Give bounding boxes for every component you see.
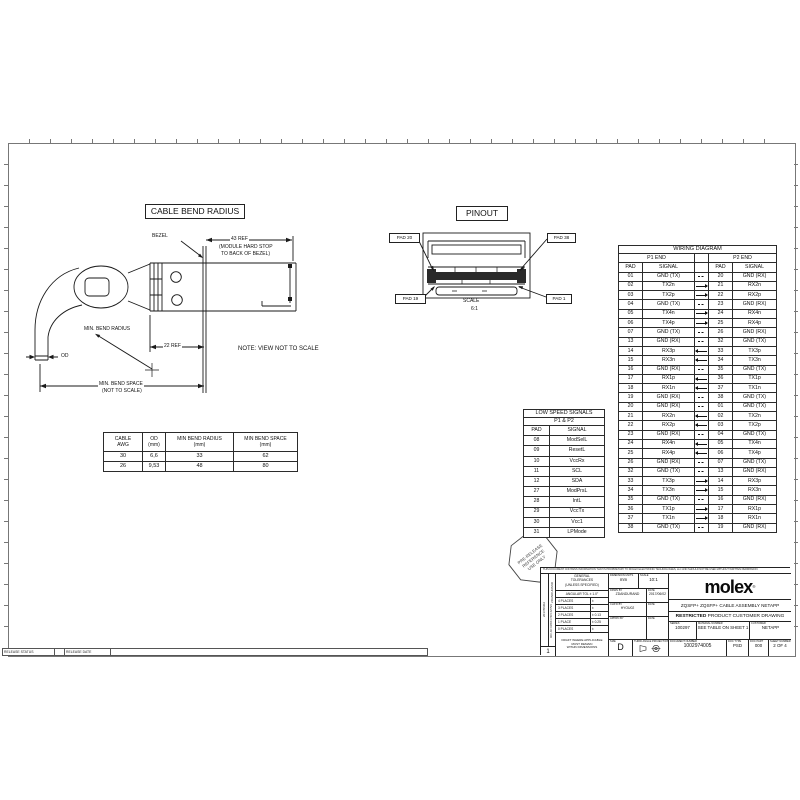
wiring-cell: 18 <box>709 514 733 523</box>
zone-tick <box>92 139 93 143</box>
wiring-cell: TX1p <box>733 374 777 383</box>
wiring-direction-cell <box>695 449 709 458</box>
wiring-cell: RX4n <box>643 439 695 448</box>
arrow-right-icon <box>696 481 707 482</box>
zone-tick <box>4 437 8 438</box>
zone-tick <box>4 206 8 207</box>
wiring-row: 17RX1p36TX1p <box>619 374 777 383</box>
third-angle-projection-icon <box>638 644 664 653</box>
zone-tick <box>134 139 135 143</box>
zone-tick <box>794 542 798 543</box>
cable-table-cell: 80 <box>234 462 298 472</box>
release-status-value <box>55 649 65 655</box>
wiring-cell: GND (RX) <box>643 402 695 411</box>
zone-tick <box>617 139 618 143</box>
zone-tick <box>794 626 798 627</box>
wiring-cell: 05 <box>709 439 733 448</box>
wiring-cell: 37 <box>619 514 643 523</box>
wiring-cell: GND (TX) <box>733 402 777 411</box>
zone-tick <box>155 139 156 143</box>
material-number-value: SEE TABLE ON SHEET 1 <box>697 625 749 631</box>
zone-tick <box>794 500 798 501</box>
min-bend-radius-label: MIN. BEND RADIUS <box>84 327 130 333</box>
zone-tick <box>575 139 576 143</box>
zone-tick <box>794 353 798 354</box>
wiring-cell: 14 <box>709 477 733 486</box>
wiring-cell: TX4p <box>733 449 777 458</box>
wiring-cell: 22 <box>709 291 733 300</box>
zone-tick <box>4 563 8 564</box>
dim-22-ref: 22 REF <box>163 344 182 350</box>
wiring-direction-cell <box>695 402 709 411</box>
wiring-cell: 04 <box>709 430 733 439</box>
wiring-cell: 26 <box>619 458 643 467</box>
od-label: OD <box>61 354 69 360</box>
cable-table-cell: 9,53 <box>143 462 166 472</box>
gnd-link-dash-icon <box>698 276 705 277</box>
arrow-right-icon <box>696 509 707 510</box>
low-speed-cell: 29 <box>524 507 550 517</box>
release-date-value <box>111 649 427 655</box>
wiring-cell: 14 <box>619 346 643 355</box>
tolerance-place-row: 3 PLACES± <box>556 604 608 611</box>
checked-by-value: HYOU02 <box>609 606 646 610</box>
cable-table-cell: 26 <box>104 462 143 472</box>
wiring-direction-cell <box>695 328 709 337</box>
wiring-direction-cell <box>695 421 709 430</box>
wiring-cell: 15 <box>709 486 733 495</box>
wiring-direction-cell <box>695 523 709 532</box>
checked-date-label: DATE <box>647 603 668 606</box>
gnd-link-dash-icon <box>698 434 705 435</box>
wiring-cell: 16 <box>709 495 733 504</box>
zone-tick <box>470 139 471 143</box>
gnd-link-dash-icon <box>698 527 705 528</box>
wiring-cell: 23 <box>619 430 643 439</box>
low-speed-row: 11SCL <box>524 466 605 476</box>
wiring-cell: 37 <box>709 384 733 393</box>
pad-20-label: PAD 20 <box>389 233 420 243</box>
wiring-cell: RX3n <box>643 356 695 365</box>
zone-tick <box>4 311 8 312</box>
zone-tick <box>4 269 8 270</box>
wiring-direction-cell <box>695 439 709 448</box>
gnd-link-dash-icon <box>698 471 705 472</box>
tolerance-place-row: 0 PLACES± <box>556 625 608 632</box>
wiring-cell: 34 <box>709 356 733 365</box>
wiring-cell: 01 <box>619 272 643 281</box>
zone-tick <box>554 139 555 143</box>
product-title: ZQSFP+ ZQSFP+ CABLE ASSEMBLY NETAPP <box>681 603 779 608</box>
angular-tolerance: ANGULAR TOL ± 1.0° <box>566 592 599 596</box>
wiring-direction-cell <box>695 430 709 439</box>
zone-tick <box>281 139 282 143</box>
wiring-cell: 04 <box>619 300 643 309</box>
arrow-right-icon <box>696 518 707 519</box>
dimension-units-value: mm <box>609 577 638 583</box>
zone-tick <box>4 164 8 165</box>
wiring-direction-cell <box>695 291 709 300</box>
wiring-cell: GND (RX) <box>643 393 695 402</box>
dim-43-note-2: TO BACK OF BEZEL) <box>221 252 270 258</box>
wiring-cell: GND (RX) <box>733 300 777 309</box>
zone-tick <box>4 185 8 186</box>
arrow-left-icon <box>696 425 707 426</box>
wiring-row: 23GND (RX)04GND (TX) <box>619 430 777 439</box>
pinout-title: PINOUT <box>456 206 508 221</box>
zone-tick <box>4 458 8 459</box>
low-speed-row: 31LPMode <box>524 527 605 537</box>
wiring-cell: GND (RX) <box>733 467 777 476</box>
low-speed-cell: Vcc1 <box>550 517 605 527</box>
arrow-left-icon <box>696 444 707 445</box>
zone-tick <box>4 542 8 543</box>
wiring-column-header: PAD <box>619 263 643 272</box>
zone-tick <box>29 139 30 143</box>
wiring-column-header: SIGNAL <box>733 263 777 272</box>
wiring-cell: RX1p <box>643 374 695 383</box>
wiring-cell: 19 <box>619 393 643 402</box>
pinout-scale-value: 6:1 <box>471 307 478 313</box>
wiring-cell: RX3p <box>733 477 777 486</box>
wiring-cell: 33 <box>619 477 643 486</box>
arrow-right-icon <box>696 313 707 314</box>
wiring-row: 24RX4n05TX4n <box>619 439 777 448</box>
wiring-direction-cell <box>695 495 709 504</box>
cable-table-cell: 62 <box>234 452 298 462</box>
wiring-direction-cell <box>695 514 709 523</box>
zone-tick <box>4 290 8 291</box>
wiring-cell: GND (TX) <box>733 393 777 402</box>
proprietary-notice: THIS DOCUMENT CONTAINS INFORMATION THAT … <box>541 568 791 572</box>
zone-tick <box>794 458 798 459</box>
zone-tick <box>533 139 534 143</box>
wiring-cell: RX2n <box>733 281 777 290</box>
zone-tick <box>659 139 660 143</box>
wiring-column-header: SIGNAL <box>643 263 695 272</box>
wiring-cell: 21 <box>619 412 643 421</box>
p2-end-header: P2 END <box>709 254 777 263</box>
zone-tick <box>794 437 798 438</box>
wiring-cell: 19 <box>709 523 733 532</box>
wiring-row: 32GND (TX)13GND (RX) <box>619 467 777 476</box>
low-speed-cell: ModSelL <box>550 436 605 446</box>
gnd-link-dash-icon <box>698 304 705 305</box>
low-speed-header: SIGNAL <box>550 426 605 436</box>
wiring-cell: 35 <box>709 365 733 374</box>
wiring-cell: 34 <box>619 486 643 495</box>
zone-tick <box>794 584 798 585</box>
wiring-cell: GND (TX) <box>733 458 777 467</box>
wiring-cell: RX2p <box>733 291 777 300</box>
zone-tick <box>722 139 723 143</box>
general-tolerances-line3: (UNLESS SPECIFIED) <box>556 583 608 587</box>
wiring-direction-cell <box>695 412 709 421</box>
wiring-cell: 13 <box>619 337 643 346</box>
release-bar: RELEASE STATUS RELEASE DATE <box>2 648 428 656</box>
low-speed-cell: ResetL <box>550 446 605 456</box>
release-date-label: RELEASE DATE <box>65 649 111 655</box>
low-speed-row: 29VccTx <box>524 507 605 517</box>
decimal-places-tolerances: 4 PLACES±3 PLACES±2 PLACES± 0.131 PLACE±… <box>555 597 608 632</box>
tolerance-place-row: 4 PLACES± <box>556 597 608 604</box>
zone-tick <box>4 374 8 375</box>
zone-tick <box>218 139 219 143</box>
zone-tick <box>50 139 51 143</box>
wiring-cell: TX3p <box>643 477 695 486</box>
wiring-cell: 33 <box>709 346 733 355</box>
arrow-right-icon <box>696 323 707 324</box>
zone-tick <box>512 139 513 143</box>
zone-tick <box>239 139 240 143</box>
wiring-column-header <box>695 263 709 272</box>
gnd-link-dash-icon <box>698 499 705 500</box>
cable-bend-table: CABLEAWGOD(mm)MIN BEND RADIUS(mm)MIN BEN… <box>103 432 298 472</box>
low-speed-cell: 31 <box>524 527 550 537</box>
wiring-column-header: PAD <box>709 263 733 272</box>
wiring-cell: 22 <box>619 421 643 430</box>
wiring-direction-cell <box>695 281 709 290</box>
cable-table-row: 269,534880 <box>104 462 298 472</box>
cable-table-cell: 6,6 <box>143 452 166 462</box>
wiring-cell: 16 <box>619 365 643 374</box>
zone-tick <box>794 605 798 606</box>
wiring-arrow-header <box>695 254 709 263</box>
wiring-diagram-table: WIRING DIAGRAM P1 END P2 END PADSIGNALPA… <box>618 245 777 533</box>
wiring-cell: GND (TX) <box>733 337 777 346</box>
arrow-left-icon <box>696 416 707 417</box>
low-speed-title: LOW SPEED SIGNALS <box>524 410 605 418</box>
wiring-cell: TX3n <box>733 356 777 365</box>
wiring-row: 20GND (RX)01GND (TX) <box>619 402 777 411</box>
zone-tick <box>794 479 798 480</box>
molex-logo: molex <box>705 578 753 596</box>
wiring-cell: RX3n <box>733 486 777 495</box>
zone-tick <box>491 139 492 143</box>
wiring-cell: 06 <box>709 449 733 458</box>
wiring-direction-cell <box>695 319 709 328</box>
zone-tick <box>794 164 798 165</box>
zone-tick <box>428 139 429 143</box>
wiring-row: 01GND (TX)20GND (RX) <box>619 272 777 281</box>
wiring-direction-cell <box>695 467 709 476</box>
wiring-row: 13GND (RX)32GND (TX) <box>619 337 777 346</box>
wiring-direction-cell <box>695 477 709 486</box>
zone-tick <box>4 500 8 501</box>
wiring-cell: 05 <box>619 309 643 318</box>
release-status-label: RELEASE STATUS <box>3 649 55 655</box>
zone-tick <box>4 227 8 228</box>
sideways-drafter-name: ZDANDURAND <box>551 582 554 603</box>
cable-table-header: CABLEAWG <box>104 433 143 452</box>
zone-tick <box>794 206 798 207</box>
drawn-date-value: 2017/06/02 <box>647 592 668 596</box>
zone-tick <box>4 353 8 354</box>
zone-tick <box>794 311 798 312</box>
wiring-cell: TX4n <box>643 309 695 318</box>
wiring-cell: 20 <box>619 402 643 411</box>
low-speed-cell: LPMode <box>550 527 605 537</box>
wiring-row: 22RX2p03TX2p <box>619 421 777 430</box>
wiring-cell: RX4p <box>733 319 777 328</box>
zone-tick <box>743 139 744 143</box>
zone-tick <box>365 139 366 143</box>
wiring-cell: GND (RX) <box>733 328 777 337</box>
wiring-cell: GND (RX) <box>643 365 695 374</box>
min-bend-space-note: (NOT TO SCALE) <box>101 389 143 395</box>
wiring-cell: 06 <box>619 319 643 328</box>
wiring-row: 19GND (RX)38GND (TX) <box>619 393 777 402</box>
arrow-right-icon <box>696 295 707 296</box>
low-speed-row: 28IntL <box>524 497 605 507</box>
wiring-cell: 17 <box>619 374 643 383</box>
wiring-direction-cell <box>695 309 709 318</box>
wiring-cell: GND (RX) <box>733 495 777 504</box>
cable-table-row: 306,63362 <box>104 452 298 462</box>
low-speed-cell: 08 <box>524 436 550 446</box>
zone-tick <box>794 269 798 270</box>
zone-tick <box>794 374 798 375</box>
low-speed-row: 27ModPrsL <box>524 487 605 497</box>
wiring-cell: 38 <box>709 393 733 402</box>
wiring-cell: GND (TX) <box>643 328 695 337</box>
wiring-cell: 03 <box>619 291 643 300</box>
wiring-cell: GND (RX) <box>643 430 695 439</box>
wiring-cell: TX1n <box>733 384 777 393</box>
wiring-cell: 21 <box>709 281 733 290</box>
wiring-cell: 03 <box>709 421 733 430</box>
dim-43-note-1: (MODULE HARD STOP <box>219 245 273 251</box>
wiring-cell: 24 <box>619 439 643 448</box>
zone-tick <box>794 395 798 396</box>
wiring-direction-cell <box>695 365 709 374</box>
low-speed-cell: SCL <box>550 466 605 476</box>
low-speed-subtitle: P1 & P2 <box>524 418 605 426</box>
wiring-row: 38GND (TX)19GND (RX) <box>619 523 777 532</box>
low-speed-row: 30Vcc1 <box>524 517 605 527</box>
sideways-date: 2017/06/02 <box>543 602 546 617</box>
wiring-cell: 07 <box>619 328 643 337</box>
wiring-cell: 32 <box>619 467 643 476</box>
wiring-cell: GND (TX) <box>643 300 695 309</box>
min-bend-space-label: MIN. BEND SPACE <box>98 382 144 388</box>
wiring-row: 02TX2n21RX2n <box>619 281 777 290</box>
zone-tick <box>764 139 765 143</box>
gnd-link-dash-icon <box>698 369 705 370</box>
wiring-cell: GND (RX) <box>733 272 777 281</box>
wiring-direction-cell <box>695 356 709 365</box>
low-speed-row: 09ResetL <box>524 446 605 456</box>
zone-tick <box>680 139 681 143</box>
doc-type-value: PSD <box>727 643 748 649</box>
wiring-row: 37TX1n18RX1n <box>619 514 777 523</box>
low-speed-row: 10VccRx <box>524 456 605 466</box>
wiring-cell: 07 <box>709 458 733 467</box>
wiring-direction-cell <box>695 505 709 514</box>
wiring-cell: GND (RX) <box>733 523 777 532</box>
sideways-signoff-labels: DOC-NO DRWN CHK'D APPVD <box>551 604 553 638</box>
zone-tick <box>302 139 303 143</box>
pad-1-label: PAD 1 <box>546 294 572 304</box>
wiring-row: 03TX2p22RX2p <box>619 291 777 300</box>
wiring-direction-cell <box>695 486 709 495</box>
low-speed-cell: SDA <box>550 476 605 486</box>
wiring-cell: TX1n <box>643 514 695 523</box>
gnd-link-dash-icon <box>698 406 705 407</box>
pinout-scale-label: SCALE <box>463 299 479 305</box>
wiring-cell: RX1n <box>733 514 777 523</box>
cable-table-cell: 30 <box>104 452 143 462</box>
cable-bend-radius-title: CABLE BEND RADIUS <box>145 204 245 219</box>
low-speed-cell: 11 <box>524 466 550 476</box>
wiring-cell: GND (TX) <box>733 365 777 374</box>
cable-table-header: MIN BEND SPACE(mm) <box>234 433 298 452</box>
registered-mark: ® <box>753 584 756 589</box>
wiring-direction-cell <box>695 393 709 402</box>
scale-value: 10:1 <box>639 577 668 583</box>
low-speed-header: PAD <box>524 426 550 436</box>
wiring-row: 16GND (RX)35GND (TX) <box>619 365 777 374</box>
gnd-link-dash-icon <box>698 397 705 398</box>
zone-tick <box>4 248 8 249</box>
wiring-cell: 24 <box>709 309 733 318</box>
restricted-drawing-note: RESTRICTED PRODUCT CUSTOMER DRAWING <box>676 614 785 619</box>
tolerance-place-row: 2 PLACES± 0.13 <box>556 611 608 618</box>
gnd-link-dash-icon <box>698 341 705 342</box>
zone-tick <box>4 416 8 417</box>
wiring-cell: 38 <box>619 523 643 532</box>
wiring-direction-cell <box>695 458 709 467</box>
draft-note-line3: WITHIN DIMENSIONS <box>556 646 608 650</box>
drawn-by-value: ZDANDURAND <box>609 592 646 596</box>
wiring-cell: GND (RX) <box>643 337 695 346</box>
low-speed-row: 08ModSelL <box>524 436 605 446</box>
zone-tick <box>701 139 702 143</box>
low-speed-cell: 30 <box>524 517 550 527</box>
wiring-cell: 20 <box>709 272 733 281</box>
wiring-direction-cell <box>695 346 709 355</box>
zone-tick <box>197 139 198 143</box>
wiring-cell: GND (TX) <box>643 495 695 504</box>
gnd-link-dash-icon <box>698 462 705 463</box>
zone-tick <box>4 521 8 522</box>
wiring-cell: RX2p <box>643 421 695 430</box>
wiring-cell: 32 <box>709 337 733 346</box>
approved-by-label: APPR'D BY <box>609 617 646 620</box>
bezel-label: BEZEL <box>152 234 168 240</box>
low-speed-cell: IntL <box>550 497 605 507</box>
wiring-row: 15RX3n34TX3n <box>619 356 777 365</box>
wiring-cell: GND (TX) <box>643 467 695 476</box>
wiring-cell: 18 <box>619 384 643 393</box>
wiring-row: 05TX4n24RX4n <box>619 309 777 318</box>
wiring-cell: GND (TX) <box>733 430 777 439</box>
wiring-row: 26GND (RX)07GND (TX) <box>619 458 777 467</box>
wiring-row: 21RX2n02TX2n <box>619 412 777 421</box>
cable-table-header-row: CABLEAWGOD(mm)MIN BEND RADIUS(mm)MIN BEN… <box>104 433 298 452</box>
cable-table-cell: 33 <box>166 452 234 462</box>
gnd-link-dash-icon <box>698 332 705 333</box>
wiring-cell: TX2n <box>733 412 777 421</box>
wiring-row: 04GND (TX)23GND (RX) <box>619 300 777 309</box>
wiring-cell: 36 <box>619 505 643 514</box>
zone-tick <box>794 332 798 333</box>
customer-value: NETAPP <box>750 625 791 631</box>
wiring-cell: RX4n <box>733 309 777 318</box>
zone-tick <box>4 605 8 606</box>
wiring-title: WIRING DIAGRAM <box>619 246 777 254</box>
title-block: THIS DOCUMENT CONTAINS INFORMATION THAT … <box>540 567 790 655</box>
